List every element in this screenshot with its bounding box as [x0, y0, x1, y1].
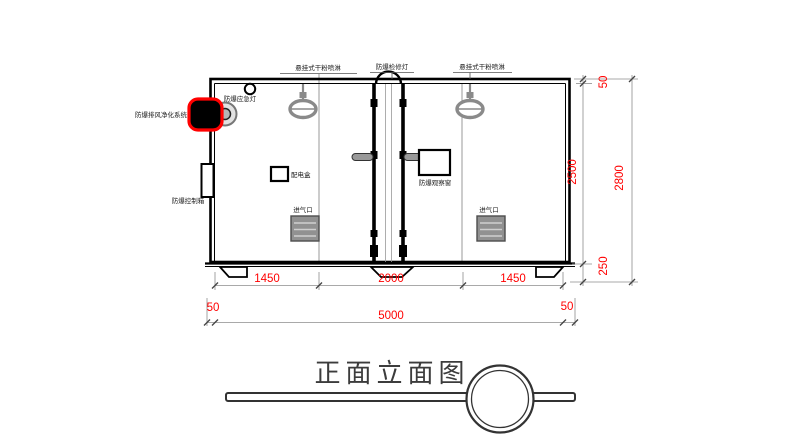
label-observation-window: 防爆观察窗 [419, 178, 452, 187]
label-sprinkler-left: 悬挂式干粉喷淋 [295, 63, 341, 72]
sprinkler-right-icon [457, 84, 483, 118]
observation-window [419, 150, 450, 175]
label-inspection-lamp: 防爆检修灯 [376, 62, 409, 71]
center-duct [352, 72, 425, 262]
label-sprinkler-right: 悬挂式干粉喷淋 [459, 62, 505, 71]
purification-unit-body [189, 99, 222, 130]
dim-height-top-50: 50 [598, 76, 610, 89]
dim-chain-height [570, 75, 638, 286]
purification-unit [189, 99, 237, 130]
label-control-box: 防爆控制箱 [172, 196, 205, 205]
dim-width-left-50: 50 [207, 302, 220, 314]
container-outline [211, 79, 570, 262]
dim-bottom-right: 1450 [500, 273, 526, 285]
label-power-box: 配电盒 [291, 170, 311, 179]
front-elevation-svg: 悬挂式干粉喷淋 防爆检修灯 悬挂式干粉喷淋 防爆应急灯 防爆排风净化系统 防爆控… [0, 0, 800, 445]
air-inlet-left-grille [291, 216, 319, 241]
power-box [271, 167, 288, 181]
drawing-title: 正面立面图 [314, 359, 469, 388]
label-purification-system: 防爆排风净化系统 [135, 110, 188, 119]
dim-height-total-2800: 2800 [614, 165, 626, 191]
dim-width-total: 5000 [378, 310, 404, 322]
title-circle-icon [467, 366, 534, 433]
label-air-inlet-left: 进气口 [293, 205, 313, 214]
dim-width-right-50: 50 [561, 301, 574, 313]
floor-lines [205, 264, 575, 267]
air-inlet-right-grille [477, 216, 505, 241]
control-box [202, 164, 214, 197]
label-emergency-lamp: 防爆应急灯 [224, 94, 257, 103]
emergency-lamp-icon [245, 84, 255, 94]
sprinkler-left-icon [290, 84, 316, 118]
duct-handles [352, 154, 425, 161]
dim-bottom-left: 1450 [254, 273, 280, 285]
elevation-drawing-page: 悬挂式干粉喷淋 防爆检修灯 悬挂式干粉喷淋 防爆应急灯 防爆排风净化系统 防爆控… [0, 0, 800, 445]
dim-height-inner-2500: 2500 [567, 159, 579, 185]
dim-bottom-center: 2000 [378, 273, 404, 285]
label-air-inlet-right: 进气口 [479, 205, 499, 214]
dim-height-foot-250: 250 [598, 256, 610, 275]
